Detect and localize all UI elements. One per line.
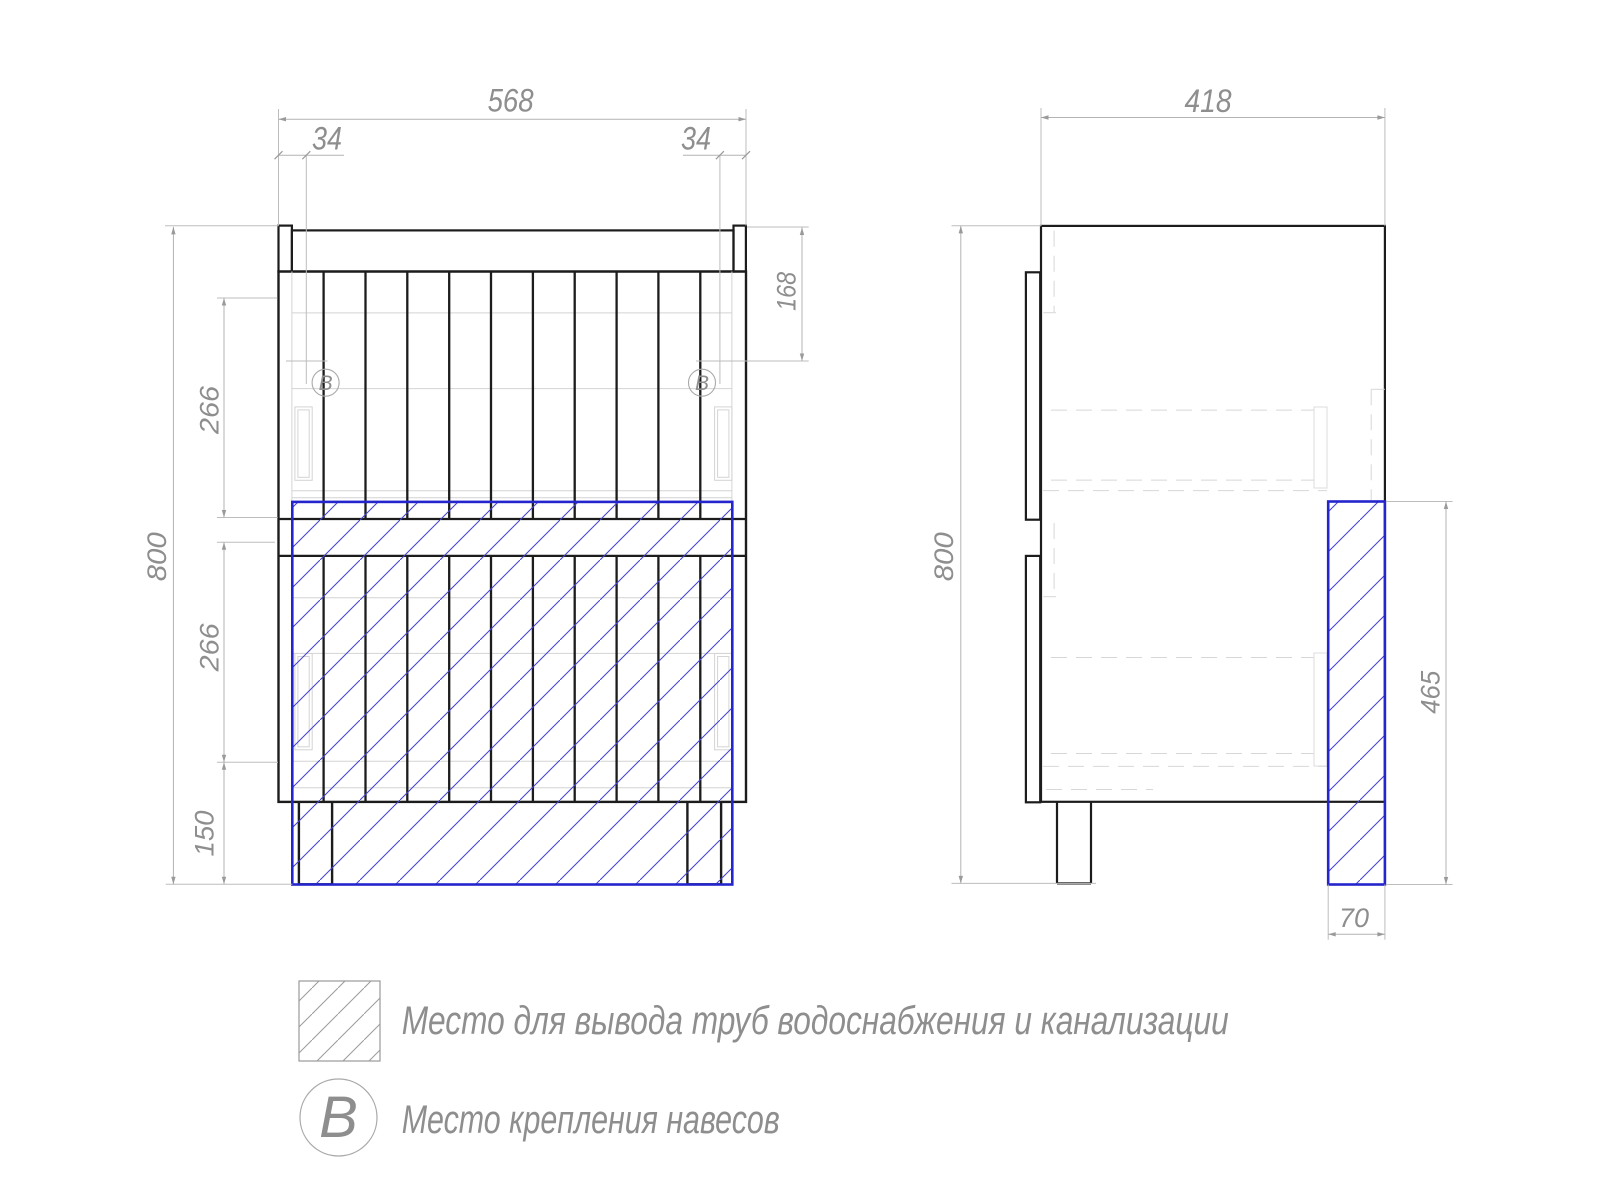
svg-text:Место для вывода труб водоснаб: Место для вывода труб водоснабжения и ка…: [402, 999, 1229, 1043]
svg-text:568: 568: [488, 83, 534, 119]
svg-text:465: 465: [1416, 670, 1446, 714]
svg-text:266: 266: [195, 622, 225, 672]
svg-text:800: 800: [929, 532, 959, 581]
svg-text:34: 34: [312, 121, 342, 157]
svg-text:150: 150: [190, 811, 220, 857]
svg-text:800: 800: [142, 532, 172, 581]
svg-text:В: В: [319, 372, 333, 395]
svg-text:418: 418: [1185, 83, 1232, 119]
svg-text:В: В: [319, 1085, 358, 1150]
svg-text:168: 168: [772, 272, 802, 311]
svg-text:34: 34: [681, 121, 711, 157]
svg-text:266: 266: [195, 385, 225, 435]
svg-text:В: В: [695, 372, 709, 395]
svg-text:Место крепления навесов: Место крепления навесов: [402, 1098, 780, 1142]
svg-text:70: 70: [1339, 903, 1369, 933]
